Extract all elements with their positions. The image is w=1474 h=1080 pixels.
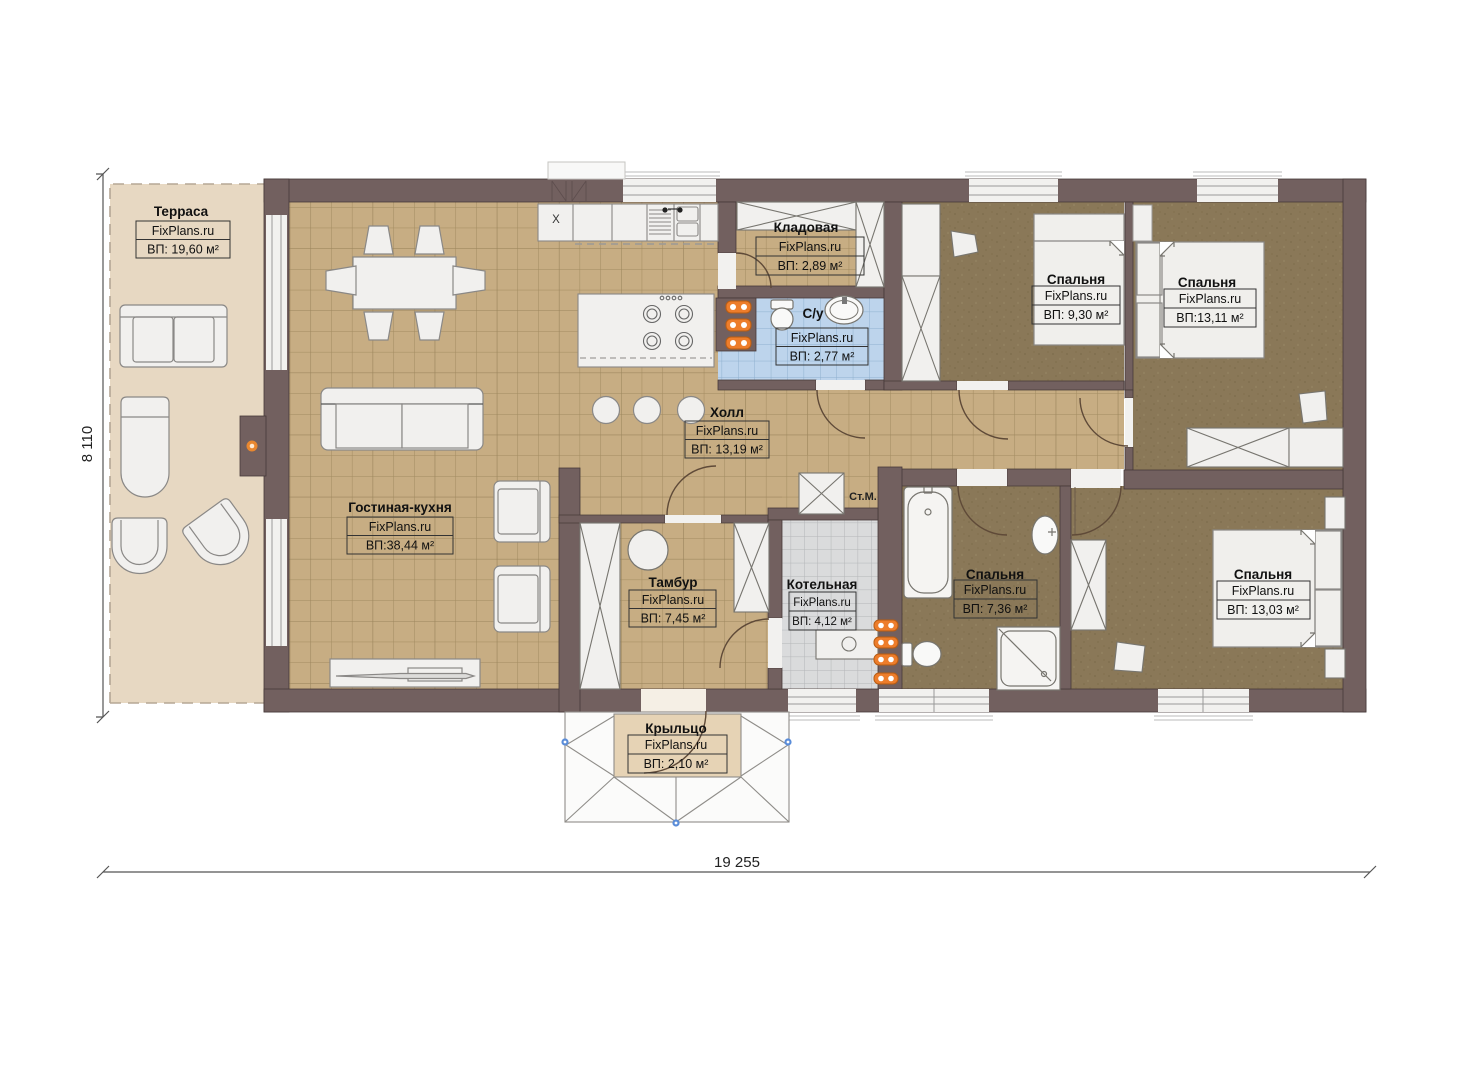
svg-text:8 110: 8 110 xyxy=(79,426,96,462)
svg-text:FixPlans.ru: FixPlans.ru xyxy=(964,583,1027,597)
svg-text:FixPlans.ru: FixPlans.ru xyxy=(1179,292,1242,306)
svg-text:FixPlans.ru: FixPlans.ru xyxy=(642,593,705,607)
svg-text:Спальня: Спальня xyxy=(1178,275,1236,290)
svg-text:ВП: 2,89 м²: ВП: 2,89 м² xyxy=(778,259,843,273)
svg-text:ВП: 2,10 м²: ВП: 2,10 м² xyxy=(644,757,709,771)
svg-text:FixPlans.ru: FixPlans.ru xyxy=(779,240,842,254)
svg-text:С/у: С/у xyxy=(802,306,824,321)
svg-text:FixPlans.ru: FixPlans.ru xyxy=(152,224,215,238)
svg-text:ВП: 7,45 м²: ВП: 7,45 м² xyxy=(641,612,706,626)
svg-text:19 255: 19 255 xyxy=(714,854,760,871)
svg-text:Гостиная-кухня: Гостиная-кухня xyxy=(348,500,451,515)
svg-text:Спальня: Спальня xyxy=(1234,567,1292,582)
svg-text:ВП: 9,30 м²: ВП: 9,30 м² xyxy=(1044,308,1109,322)
svg-text:ВП: 7,36 м²: ВП: 7,36 м² xyxy=(963,602,1028,616)
svg-text:Спальня: Спальня xyxy=(1047,272,1105,287)
svg-text:FixPlans.ru: FixPlans.ru xyxy=(793,597,851,609)
svg-text:Кладовая: Кладовая xyxy=(774,220,839,235)
svg-text:Крыльцо: Крыльцо xyxy=(645,721,706,736)
svg-text:FixPlans.ru: FixPlans.ru xyxy=(791,331,854,345)
svg-text:Тамбур: Тамбур xyxy=(649,575,698,590)
svg-text:ВП: 13,19 м²: ВП: 13,19 м² xyxy=(691,443,763,457)
svg-text:FixPlans.ru: FixPlans.ru xyxy=(1232,584,1295,598)
svg-text:FixPlans.ru: FixPlans.ru xyxy=(696,424,759,438)
svg-text:X: X xyxy=(552,214,560,226)
svg-text:ВП: 19,60 м²: ВП: 19,60 м² xyxy=(147,243,219,257)
svg-text:ВП: 4,12 м²: ВП: 4,12 м² xyxy=(792,616,852,628)
svg-text:Ст.М.: Ст.М. xyxy=(849,491,877,503)
svg-text:Терраса: Терраса xyxy=(154,204,209,219)
svg-text:ВП: 13,03 м²: ВП: 13,03 м² xyxy=(1227,603,1299,617)
svg-text:ВП: 2,77 м²: ВП: 2,77 м² xyxy=(790,350,855,364)
svg-text:ВП:38,44 м²: ВП:38,44 м² xyxy=(366,539,434,553)
svg-text:FixPlans.ru: FixPlans.ru xyxy=(1045,289,1108,303)
svg-text:Котельная: Котельная xyxy=(787,577,858,592)
svg-text:ВП:13,11 м²: ВП:13,11 м² xyxy=(1176,311,1243,325)
svg-text:FixPlans.ru: FixPlans.ru xyxy=(645,738,708,752)
svg-text:Холл: Холл xyxy=(710,405,744,420)
svg-text:FixPlans.ru: FixPlans.ru xyxy=(369,520,432,534)
